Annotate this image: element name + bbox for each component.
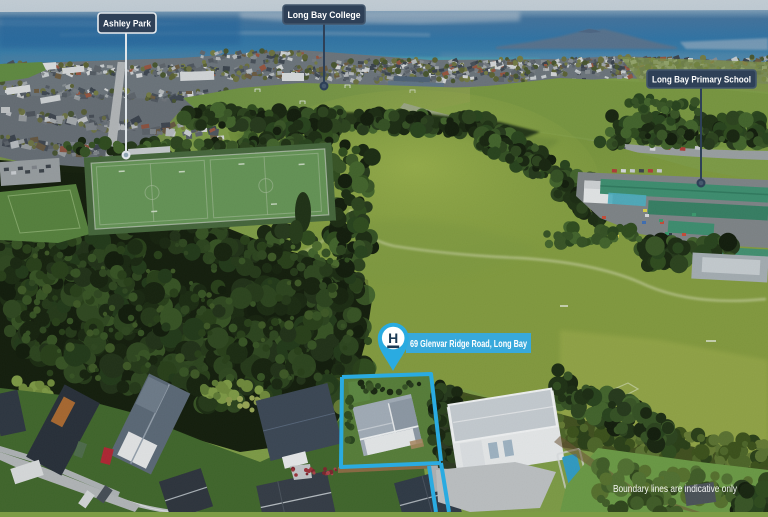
svg-text:Long Bay Primary School: Long Bay Primary School [652, 74, 751, 85]
svg-text:Long Bay College: Long Bay College [288, 10, 361, 21]
svg-text:69 Glenvar Ridge Road, Long Ba: 69 Glenvar Ridge Road, Long Bay [410, 339, 527, 350]
svg-text:H: H [388, 330, 398, 346]
svg-text:Ashley Park: Ashley Park [103, 18, 152, 29]
svg-text:Boundary lines are indicative: Boundary lines are indicative only [613, 483, 738, 495]
